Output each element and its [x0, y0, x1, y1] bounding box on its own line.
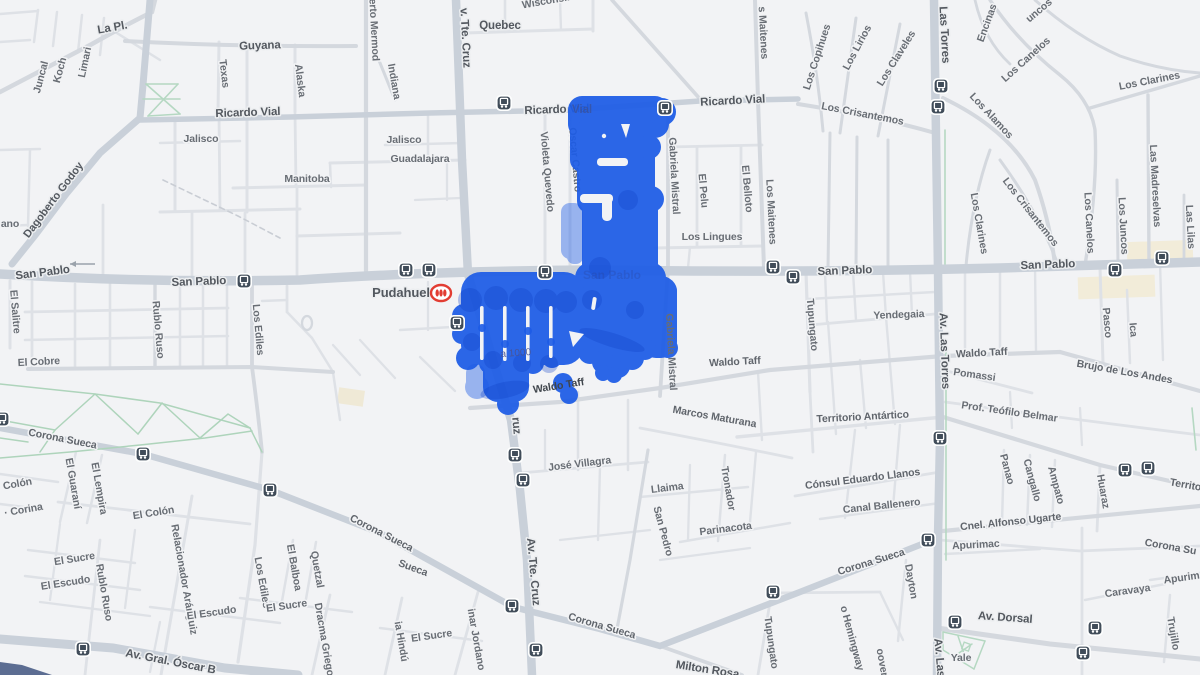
- svg-text:Yendegaia: Yendegaia: [873, 308, 925, 322]
- svg-text:Guyana: Guyana: [239, 39, 282, 52]
- svg-text:Ricardo Vial: Ricardo Vial: [215, 106, 280, 120]
- svg-text:San Pablo: San Pablo: [1020, 258, 1075, 272]
- svg-text:Manitoba: Manitoba: [284, 173, 330, 185]
- svg-text:Jalisco: Jalisco: [387, 134, 422, 146]
- svg-text:San Pablo: San Pablo: [171, 275, 226, 289]
- svg-text:Vial: Vial: [572, 104, 592, 116]
- svg-text:a 1000: a 1000: [500, 347, 532, 360]
- svg-text:Apurimac: Apurimac: [952, 538, 1000, 552]
- svg-text:Quebec: Quebec: [479, 20, 521, 32]
- svg-text:El Cobre: El Cobre: [17, 355, 60, 369]
- svg-text:ano: ano: [1, 218, 19, 230]
- svg-text:Ica: Ica: [1126, 322, 1139, 338]
- svg-text:Los Lingues: Los Lingues: [682, 231, 743, 243]
- svg-text:San Pablo: San Pablo: [583, 268, 641, 282]
- svg-text:Las Lilas: Las Lilas: [1183, 205, 1197, 250]
- svg-text:San Pablo: San Pablo: [817, 264, 872, 278]
- svg-text:Pudahuel: Pudahuel: [372, 285, 430, 300]
- svg-text:Guadalajara: Guadalajara: [390, 153, 449, 165]
- svg-text:Yale: Yale: [951, 652, 972, 664]
- svg-text:ruz: ruz: [509, 417, 522, 435]
- svg-text:Jalisco: Jalisco: [184, 133, 219, 145]
